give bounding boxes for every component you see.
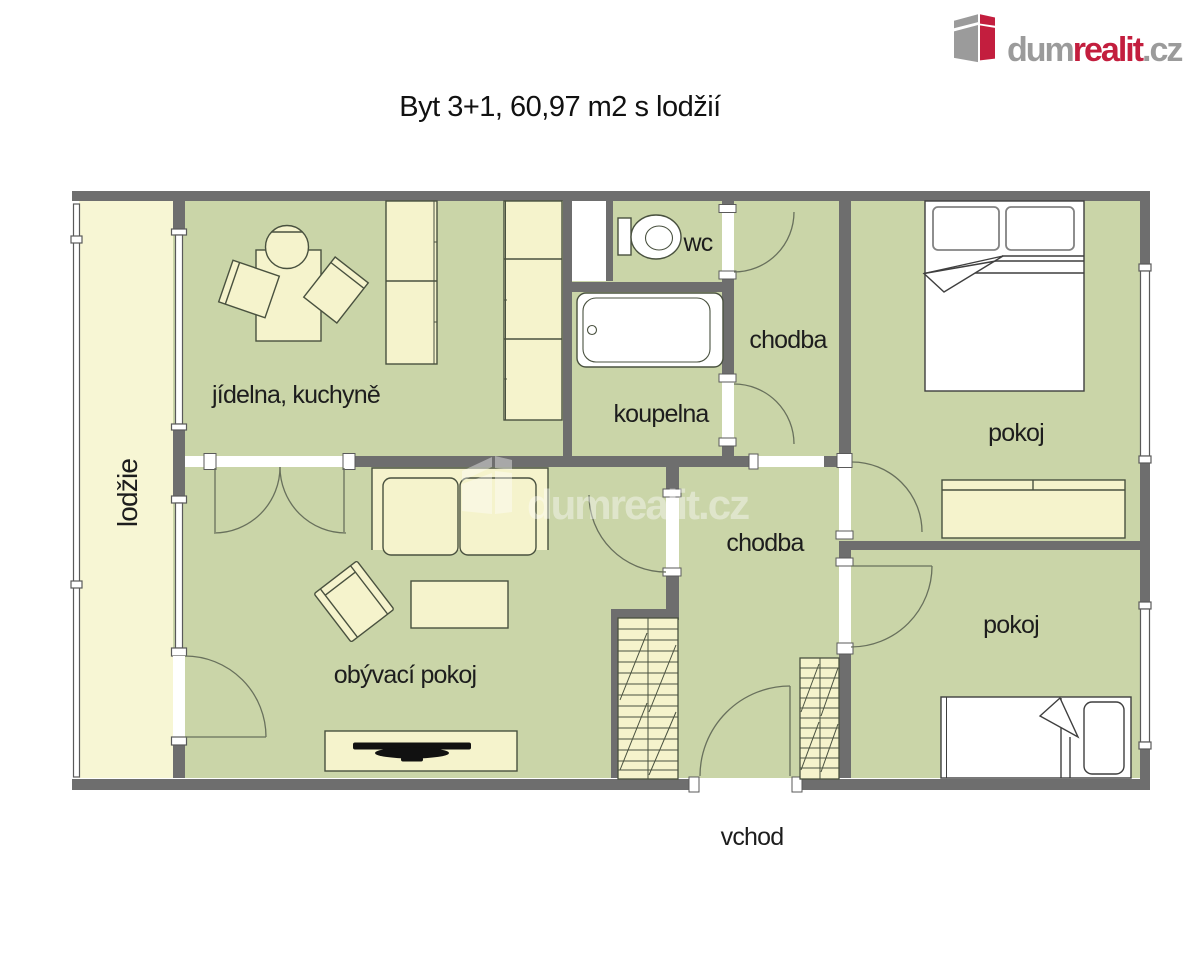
svg-text:dumrealit.cz: dumrealit.cz	[527, 481, 749, 528]
svg-text:pokoj: pokoj	[983, 611, 1039, 639]
svg-text:jídelna, kuchyně: jídelna, kuchyně	[211, 381, 380, 409]
svg-text:chodba: chodba	[726, 529, 804, 557]
svg-text:wc: wc	[683, 229, 713, 257]
svg-text:chodba: chodba	[749, 326, 827, 354]
svg-text:obývací pokoj: obývací pokoj	[334, 661, 476, 689]
svg-text:dumrealit.cz: dumrealit.cz	[1007, 31, 1182, 69]
svg-text:Byt 3+1, 60,97 m2 s lodžií: Byt 3+1, 60,97 m2 s lodžií	[399, 91, 721, 123]
svg-text:pokoj: pokoj	[988, 419, 1044, 447]
svg-text:lodžie: lodžie	[112, 459, 143, 528]
svg-text:vchod: vchod	[721, 823, 784, 851]
svg-text:koupelna: koupelna	[613, 400, 709, 428]
